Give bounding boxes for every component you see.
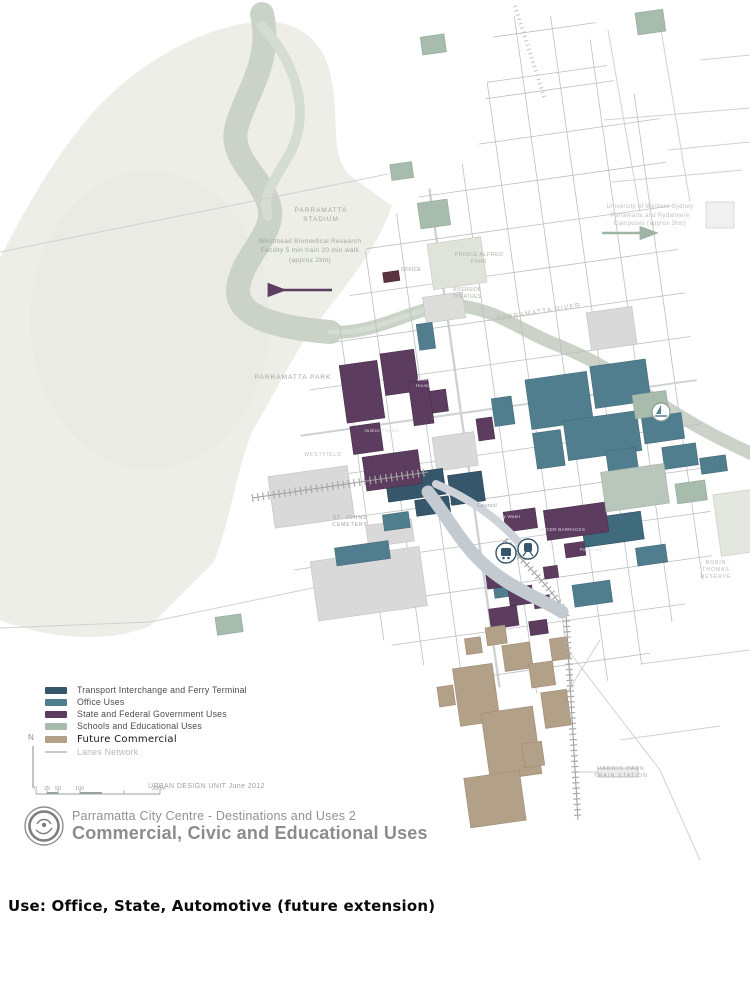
label-court-house: Court House [412, 377, 434, 388]
legend-label: Schools and Educational Uses [77, 721, 202, 731]
scale-tick: 100 [75, 786, 84, 792]
legend-label: Future Commercial [77, 734, 177, 745]
legend-label: Lanes Network [77, 747, 138, 757]
future-commercial-blocks [430, 617, 592, 830]
label-robin-thomas-reserve: ROBIN THOMAS RESERVE [692, 560, 740, 580]
train-station-icon [518, 539, 538, 559]
schools-swatch-icon [45, 723, 67, 730]
office-swatch-icon [45, 699, 67, 706]
label-riverside-theatres: RIVERSIDE THEATRES [446, 287, 488, 301]
legend-item-schools: Schools and Educational Uses [45, 720, 247, 732]
credit-text: URBAN DESIGN UNIT June 2012 [148, 783, 265, 790]
outlying-block [706, 202, 734, 228]
label-office: OFFICE [396, 267, 426, 274]
scale-tick: 25 [44, 786, 50, 792]
label-westmead-note: Westmead Biomedical Research Facility 5 … [252, 237, 368, 265]
map-title-line1: Parramatta City Centre - Destinations an… [72, 809, 356, 823]
label-westfield: WESTFIELD [298, 452, 348, 459]
legend-label: State and Federal Government Uses [77, 709, 227, 719]
lanes-line-icon [45, 751, 67, 753]
legend-item-future-commercial: Future Commercial [45, 732, 247, 746]
map-legend: Transport Interchange and Ferry Terminal… [45, 684, 247, 758]
label-parramatta-stadium: PARRAMATTA STADIUM [283, 207, 359, 225]
label-lancer-barracks: LANCER BARRACKS [532, 527, 590, 533]
legend-item-transport: Transport Interchange and Ferry Terminal [45, 684, 247, 696]
school-large-block [601, 463, 670, 512]
legend-item-government: State and Federal Government Uses [45, 708, 247, 720]
council-logo [25, 807, 63, 845]
label-st-johns-cemetery: ST. JOHNS CEMETERY [328, 515, 372, 529]
legend-item-office: Office Uses [45, 696, 247, 708]
label-justice-precinct: Justice Precinct [362, 428, 402, 434]
civic-gray-blocks [251, 306, 669, 625]
legend-label: Office Uses [77, 697, 125, 707]
legend-item-lanes: Lanes Network [45, 746, 247, 758]
ferry-terminal-icon [652, 403, 670, 421]
north-label: N [28, 733, 34, 742]
label-uws-note: University of Western Sydney Parramatta … [596, 203, 704, 229]
label-council: Council [470, 503, 504, 510]
label-police-hq: Police HQ [568, 547, 614, 553]
label-harris-park-station: HARRIS PARK TRAIN STATION [590, 766, 652, 781]
scale-tick: 50 [55, 786, 61, 792]
map-title-line2: Commercial, Civic and Educational Uses [72, 823, 428, 844]
label-prince-alfred-park: PRINCE ALFRED PARK [448, 252, 510, 267]
robin-thomas-block [713, 487, 750, 556]
future-commercial-swatch-icon [45, 736, 67, 743]
page: PARRAMATTA STADIUM Westmead Biomedical R… [0, 0, 750, 1000]
use-caption: Use: Office, State, Automotive (future e… [8, 897, 435, 915]
bus-interchange-icon [496, 543, 516, 563]
legend-label: Transport Interchange and Ferry Terminal [77, 685, 247, 695]
transport-swatch-icon [45, 687, 67, 694]
label-parramatta-park: PARRAMATTA PARK [238, 374, 348, 383]
label-sydney-water: Sydney Water [489, 514, 521, 520]
government-swatch-icon [45, 711, 67, 718]
scale-tick: 0 [34, 786, 37, 792]
